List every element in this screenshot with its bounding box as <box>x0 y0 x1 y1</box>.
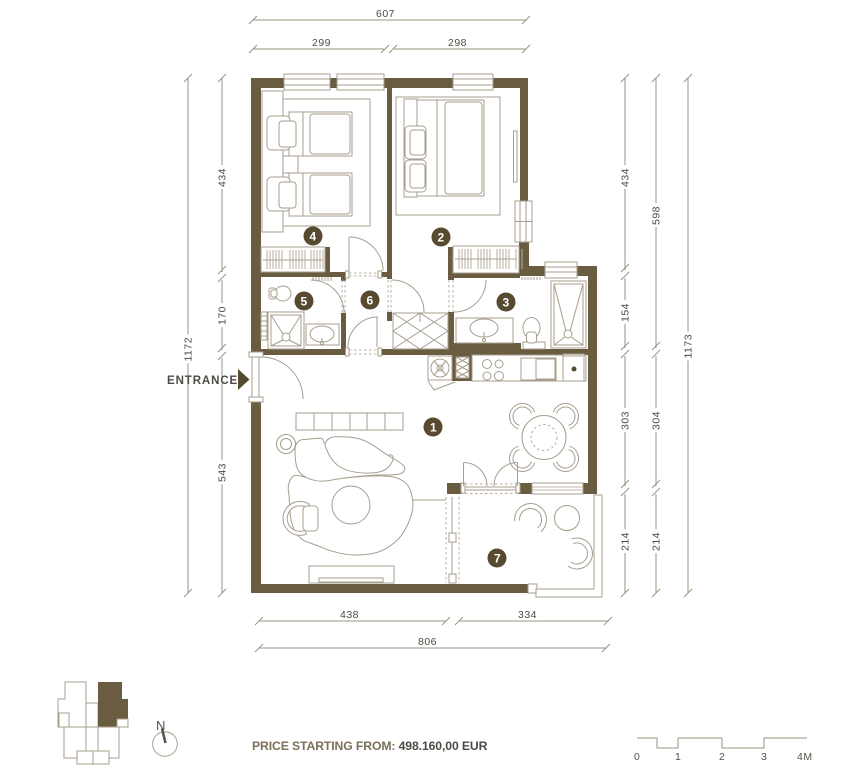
svg-text:PRICE STARTING FROM: 498.160,: PRICE STARTING FROM: 498.160,00 EUR <box>252 739 488 753</box>
svg-text:434: 434 <box>620 168 632 187</box>
svg-text:154: 154 <box>620 303 632 322</box>
svg-text:2: 2 <box>719 751 725 763</box>
svg-text:2: 2 <box>438 231 445 245</box>
svg-text:214: 214 <box>651 532 663 551</box>
svg-text:1: 1 <box>430 421 437 435</box>
svg-text:434: 434 <box>217 168 229 187</box>
svg-text:0: 0 <box>634 751 640 763</box>
svg-text:303: 303 <box>620 411 632 430</box>
svg-text:4: 4 <box>310 230 317 244</box>
svg-text:1173: 1173 <box>683 334 695 359</box>
svg-text:ENTRANCE: ENTRANCE <box>167 375 238 387</box>
svg-text:806: 806 <box>418 636 437 648</box>
svg-text:598: 598 <box>651 206 663 225</box>
svg-text:6: 6 <box>367 294 374 308</box>
svg-text:3: 3 <box>503 296 510 310</box>
svg-text:298: 298 <box>448 37 467 49</box>
svg-text:304: 304 <box>651 411 663 430</box>
svg-text:1172: 1172 <box>183 337 195 362</box>
svg-text:438: 438 <box>340 609 359 621</box>
svg-text:1: 1 <box>675 751 681 763</box>
svg-text:7: 7 <box>494 552 501 566</box>
svg-text:334: 334 <box>518 609 537 621</box>
svg-text:4M: 4M <box>797 751 813 763</box>
svg-text:607: 607 <box>376 8 395 20</box>
svg-text:5: 5 <box>301 295 308 309</box>
svg-text:543: 543 <box>217 463 229 482</box>
svg-text:299: 299 <box>312 37 331 49</box>
svg-text:214: 214 <box>620 532 632 551</box>
svg-text:170: 170 <box>217 306 229 325</box>
svg-text:N: N <box>156 718 165 733</box>
svg-text:3: 3 <box>761 751 767 763</box>
